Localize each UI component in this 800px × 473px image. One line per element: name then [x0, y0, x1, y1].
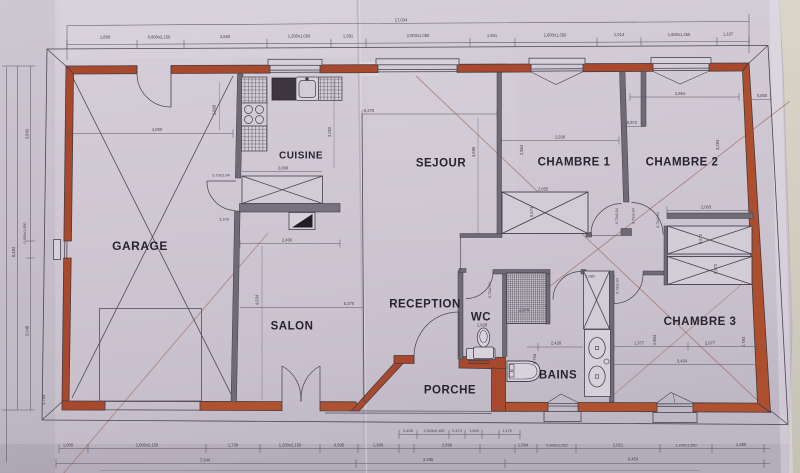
- svg-text:CHAMBRE 3: CHAMBRE 3: [664, 316, 737, 328]
- svg-text:2,974: 2,974: [519, 308, 530, 313]
- svg-text:1,390: 1,390: [736, 442, 747, 447]
- svg-text:1,739: 1,739: [228, 443, 239, 448]
- svg-text:0,572: 0,572: [698, 233, 703, 244]
- svg-text:1,300: 1,300: [373, 443, 384, 448]
- svg-text:0,473: 0,473: [452, 429, 462, 433]
- svg-text:4,000: 4,000: [152, 127, 163, 132]
- svg-text:PORCHE: PORCHE: [424, 385, 476, 397]
- svg-text:2,964: 2,964: [652, 334, 657, 345]
- svg-text:2,003x1,050: 2,003x1,050: [407, 33, 430, 38]
- svg-text:4,696: 4,696: [471, 146, 476, 157]
- svg-text:3,284: 3,284: [715, 139, 720, 150]
- svg-text:4,034: 4,034: [255, 294, 260, 305]
- svg-text:2,964: 2,964: [519, 144, 524, 155]
- svg-text:3,250: 3,250: [327, 126, 332, 137]
- svg-text:0,800x2,150: 0,800x2,150: [148, 34, 171, 39]
- svg-text:3,048: 3,048: [25, 325, 30, 336]
- svg-text:1,377: 1,377: [634, 341, 645, 346]
- svg-text:1,928: 1,928: [477, 323, 488, 328]
- svg-text:1,391: 1,391: [343, 34, 354, 39]
- svg-text:2,400: 2,400: [282, 238, 293, 243]
- svg-text:3,286: 3,286: [423, 457, 434, 462]
- svg-text:SEJOUR: SEJOUR: [416, 158, 466, 170]
- svg-text:2,896: 2,896: [442, 443, 453, 448]
- svg-text:0,800x1,052: 0,800x1,052: [546, 443, 567, 448]
- svg-text:6,375: 6,375: [364, 108, 375, 113]
- svg-text:0,73x2,04: 0,73x2,04: [656, 212, 660, 228]
- svg-text:1,600x1,350: 1,600x1,350: [544, 33, 567, 38]
- svg-text:3,842: 3,842: [25, 128, 30, 139]
- svg-text:GARAGE: GARAGE: [112, 239, 168, 253]
- svg-text:0,900x1,950: 0,900x1,950: [23, 223, 27, 244]
- svg-text:2,428: 2,428: [551, 341, 562, 346]
- svg-text:0,905: 0,905: [334, 443, 345, 448]
- svg-text:0,73x2,04: 0,73x2,04: [632, 208, 636, 224]
- svg-text:2,784: 2,784: [741, 336, 746, 347]
- svg-text:1,200x1,050: 1,200x1,050: [288, 34, 311, 39]
- svg-text:1,800: 1,800: [100, 35, 111, 40]
- svg-text:RECEPTION: RECEPTION: [389, 299, 461, 311]
- svg-text:1,107: 1,107: [723, 32, 734, 37]
- svg-text:17,034: 17,034: [395, 18, 408, 23]
- svg-text:1,868: 1,868: [212, 104, 217, 115]
- svg-text:0,73x2,04: 0,73x2,04: [212, 173, 230, 178]
- svg-text:2,928: 2,928: [555, 135, 566, 140]
- svg-text:2,550: 2,550: [220, 34, 231, 39]
- svg-text:2,021: 2,021: [613, 443, 624, 448]
- svg-text:2,055: 2,055: [538, 187, 549, 192]
- svg-text:2,954: 2,954: [675, 91, 686, 96]
- svg-text:6,454: 6,454: [628, 457, 639, 462]
- svg-text:5,370: 5,370: [344, 301, 355, 306]
- svg-text:CUISINE: CUISINE: [279, 151, 323, 162]
- svg-text:0,73x2,04: 0,73x2,04: [488, 282, 492, 298]
- svg-text:0,572: 0,572: [713, 263, 718, 274]
- svg-text:SALON: SALON: [271, 321, 314, 333]
- svg-text:2,003: 2,003: [701, 205, 712, 210]
- svg-text:0,73x2,04: 0,73x2,04: [615, 208, 619, 224]
- svg-text:2,000: 2,000: [278, 166, 289, 171]
- svg-text:2,077: 2,077: [705, 341, 716, 346]
- svg-text:1,175: 1,175: [502, 429, 512, 433]
- svg-text:1,901: 1,901: [487, 33, 498, 38]
- svg-text:1,000: 1,000: [63, 443, 74, 448]
- svg-text:8,484: 8,484: [11, 246, 16, 257]
- svg-text:1,600x1,350: 1,600x1,350: [668, 32, 691, 37]
- svg-text:BAINS: BAINS: [539, 370, 577, 382]
- svg-text:7,344: 7,344: [200, 458, 211, 463]
- svg-text:0,406: 0,406: [403, 429, 413, 433]
- svg-text:0,73x2,04: 0,73x2,04: [616, 278, 620, 294]
- svg-text:2,003x0,150: 2,003x0,150: [424, 429, 445, 433]
- svg-text:1,200x1,350: 1,200x1,350: [675, 443, 697, 448]
- svg-text:CHAMBRE 1: CHAMBRE 1: [538, 157, 611, 169]
- svg-text:1,064: 1,064: [518, 443, 529, 448]
- svg-text:1,784: 1,784: [41, 394, 46, 405]
- svg-text:3,109: 3,109: [219, 217, 229, 222]
- svg-text:1,013: 1,013: [614, 32, 625, 37]
- svg-text:1,200x2,150: 1,200x2,150: [279, 443, 302, 448]
- svg-text:0,850: 0,850: [757, 93, 768, 98]
- svg-text:2,500x2,150: 2,500x2,150: [136, 443, 159, 448]
- svg-text:CHAMBRE 2: CHAMBRE 2: [646, 157, 719, 169]
- svg-text:1,086: 1,086: [586, 275, 595, 279]
- svg-text:1,400: 1,400: [469, 429, 479, 433]
- svg-text:0,872: 0,872: [627, 120, 638, 125]
- svg-text:0,574: 0,574: [529, 206, 534, 217]
- svg-text:0,764: 0,764: [532, 353, 537, 364]
- svg-text:3,454: 3,454: [677, 359, 688, 364]
